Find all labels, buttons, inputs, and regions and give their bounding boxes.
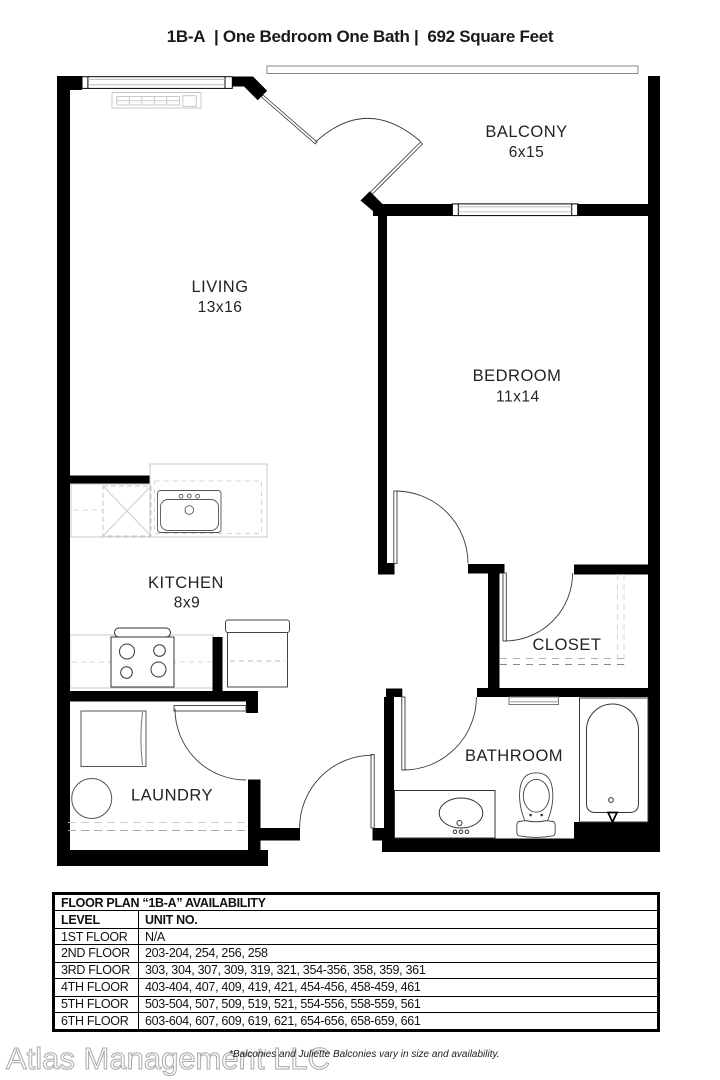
svg-text:BALCONY: BALCONY — [485, 123, 567, 141]
svg-text:11x14: 11x14 — [496, 389, 540, 406]
svg-text:6x15: 6x15 — [509, 144, 545, 161]
svg-text:KITCHEN: KITCHEN — [148, 574, 224, 592]
svg-text:CLOSET: CLOSET — [532, 636, 601, 654]
svg-text:LAUNDRY: LAUNDRY — [131, 787, 213, 805]
svg-text:BEDROOM: BEDROOM — [473, 367, 562, 385]
svg-text:BATHROOM: BATHROOM — [465, 747, 563, 765]
svg-text:8x9: 8x9 — [174, 595, 201, 612]
svg-text:LIVING: LIVING — [191, 278, 248, 296]
svg-text:13x16: 13x16 — [198, 299, 243, 316]
